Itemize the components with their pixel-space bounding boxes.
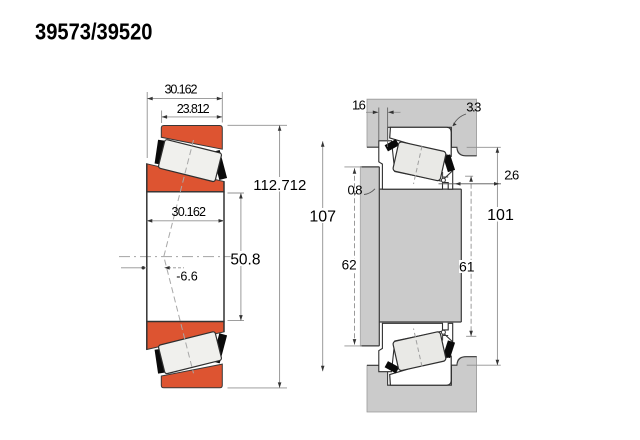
svg-text:101: 101 [487,207,514,224]
svg-text:0.8: 0.8 [348,182,363,197]
svg-text:107: 107 [309,209,336,226]
svg-text:30.162: 30.162 [165,83,198,97]
svg-text:50.8: 50.8 [230,251,260,268]
svg-text:30.162: 30.162 [172,205,207,219]
svg-text:-6.6: -6.6 [176,270,198,284]
svg-text:61: 61 [459,258,475,274]
svg-text:62: 62 [342,258,357,273]
svg-text:1.6: 1.6 [352,97,366,112]
svg-text:3.3: 3.3 [466,99,481,114]
svg-text:23.812: 23.812 [177,102,210,116]
svg-text:112.712: 112.712 [253,177,306,194]
svg-text:2.6: 2.6 [504,167,519,182]
svg-text:39573/39520: 39573/39520 [35,19,153,45]
